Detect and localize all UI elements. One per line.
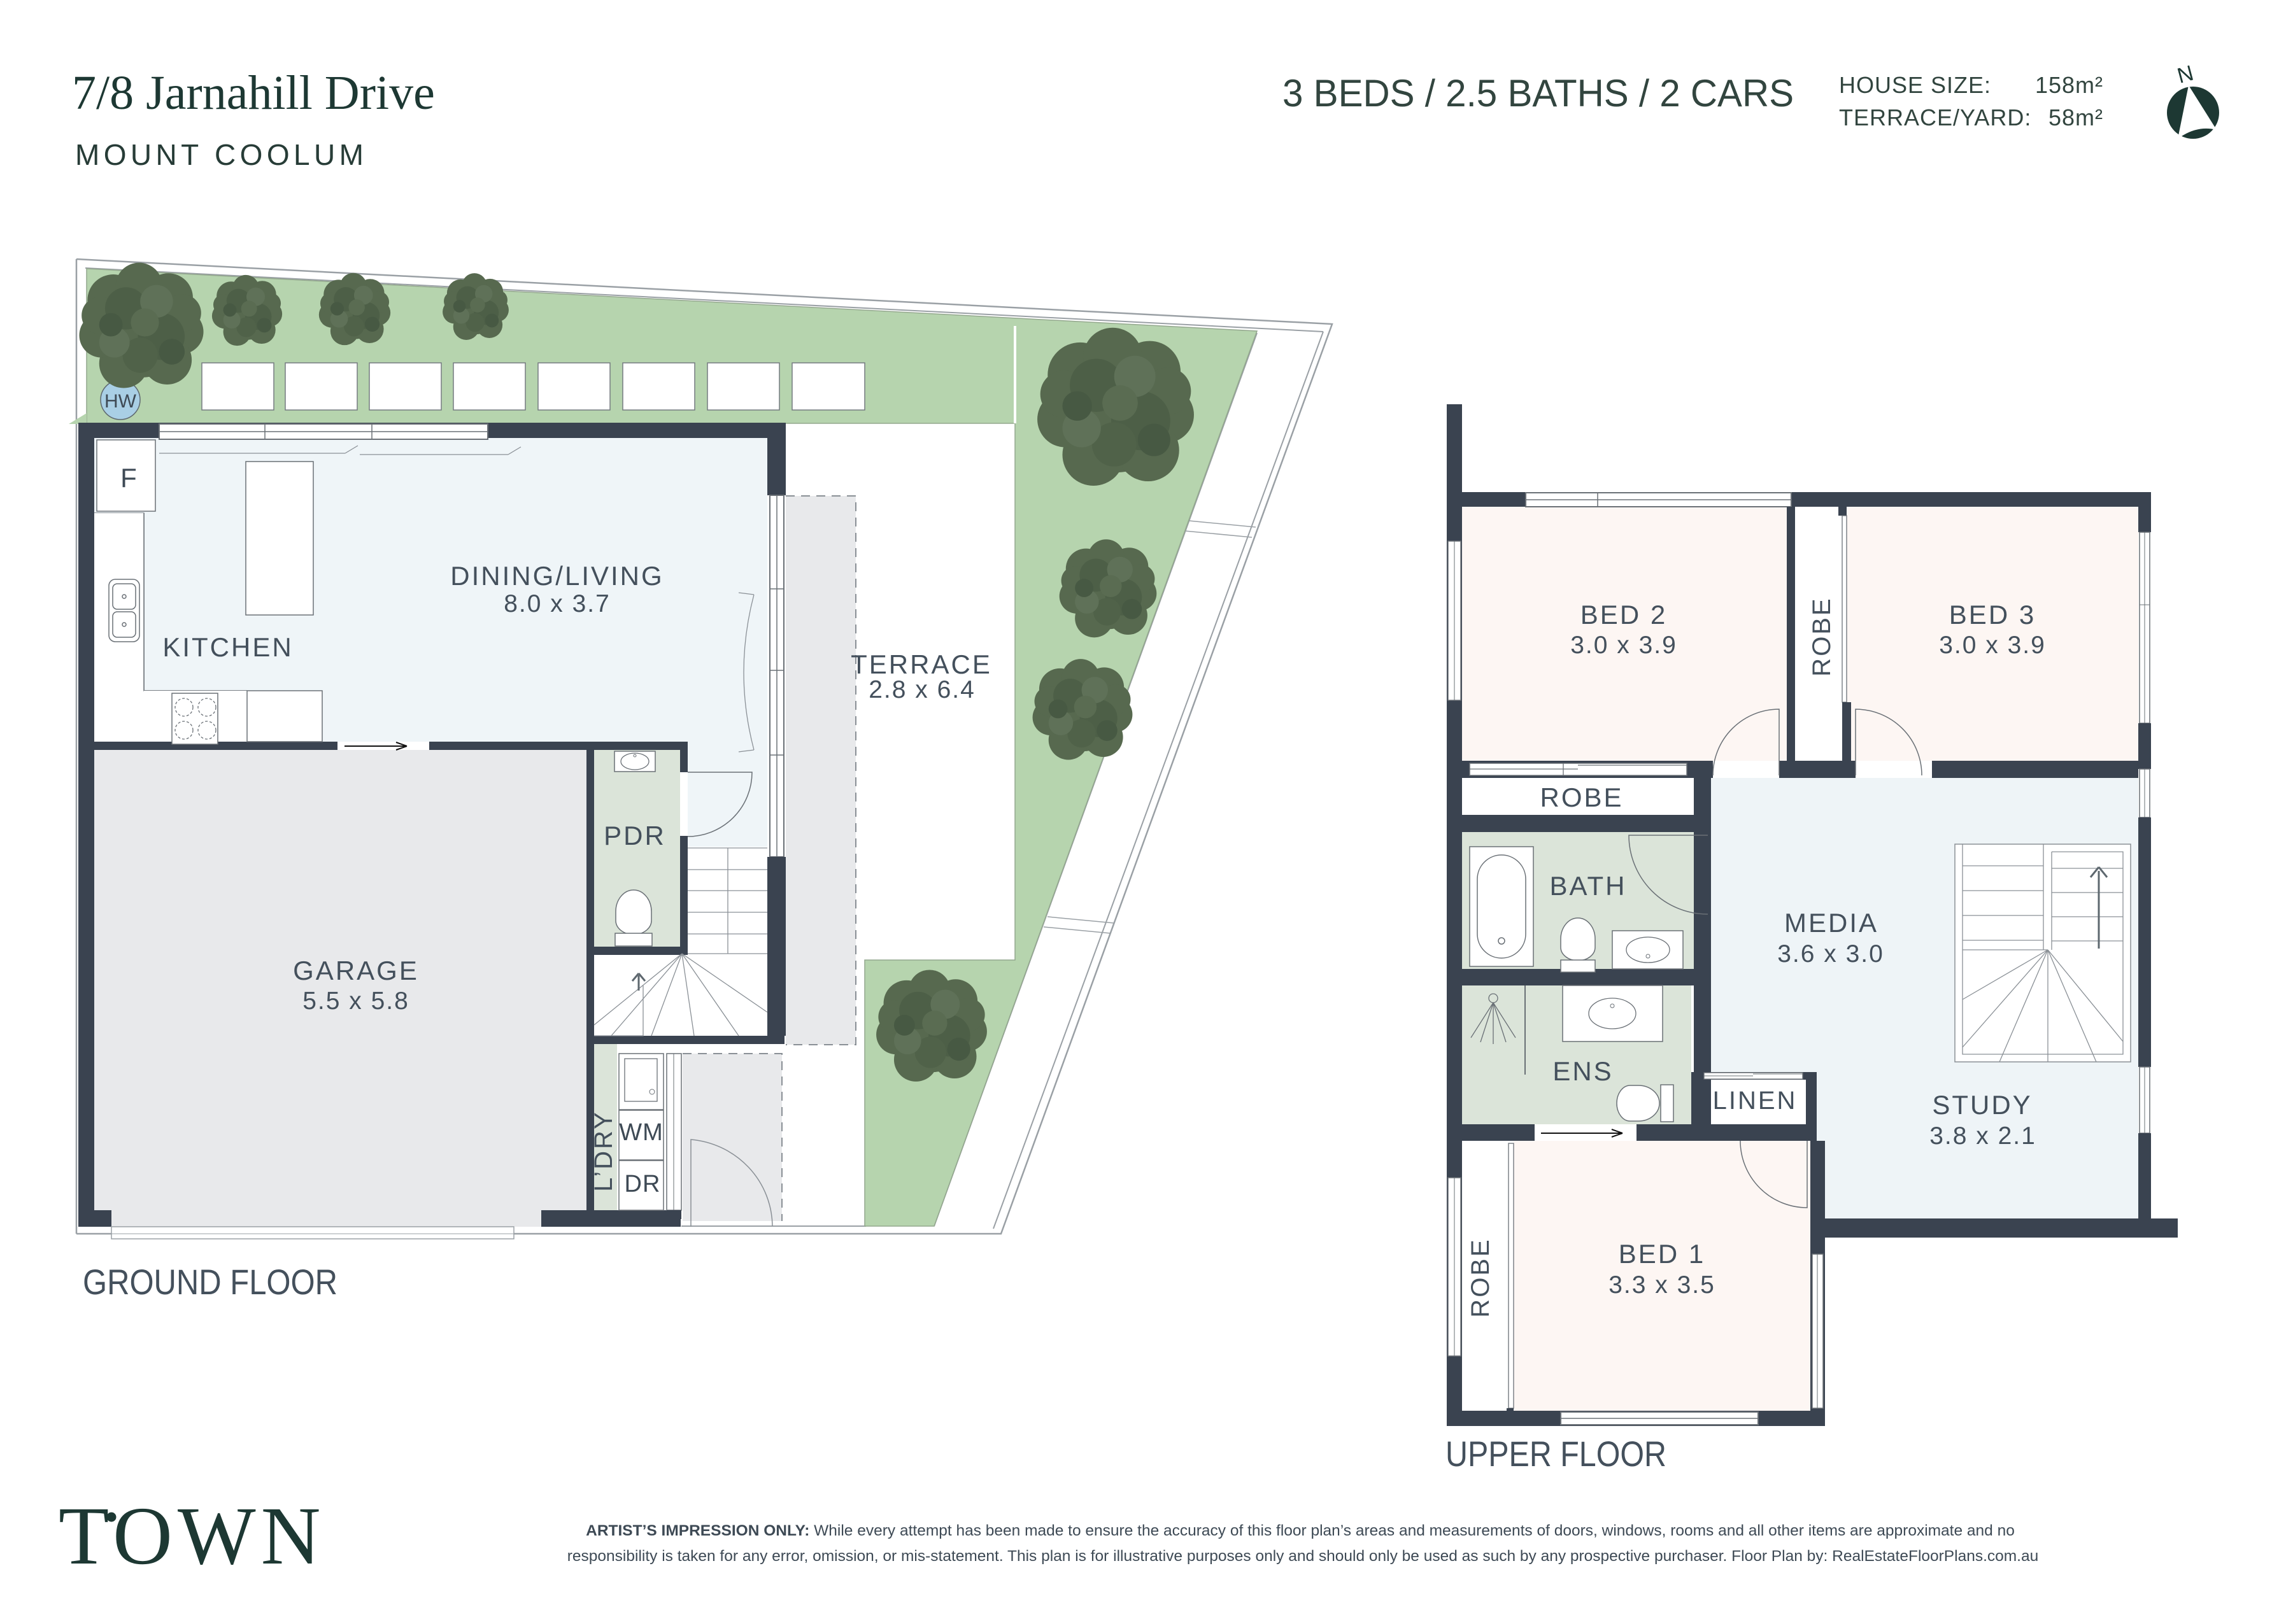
svg-text:responsibility is taken for an: responsibility is taken for any error, o… <box>567 1548 2038 1565</box>
svg-text:5.5 x 5.8: 5.5 x 5.8 <box>302 987 409 1015</box>
svg-text:ROBE: ROBE <box>1466 1238 1494 1317</box>
svg-text:ENS: ENS <box>1552 1056 1613 1086</box>
svg-text:BED 2: BED 2 <box>1580 600 1667 630</box>
svg-text:WM: WM <box>619 1119 664 1146</box>
svg-text:7/8 Jarnahill Drive: 7/8 Jarnahill Drive <box>72 66 435 120</box>
svg-text:3.6 x 3.0: 3.6 x 3.0 <box>1777 940 1884 968</box>
svg-text:GARAGE: GARAGE <box>293 956 419 985</box>
svg-text:DINING/LIVING: DINING/LIVING <box>450 561 664 591</box>
svg-text:DR: DR <box>625 1171 661 1197</box>
svg-text:3.3 x 3.5: 3.3 x 3.5 <box>1608 1271 1715 1299</box>
svg-text:58m²: 58m² <box>2048 104 2103 131</box>
svg-text:3.0 x 3.9: 3.0 x 3.9 <box>1570 632 1677 659</box>
svg-text:MEDIA: MEDIA <box>1784 908 1878 938</box>
svg-text:PDR: PDR <box>604 821 666 851</box>
svg-text:ARTIST’S IMPRESSION ONLY: Whil: ARTIST’S IMPRESSION ONLY: While every at… <box>586 1522 2015 1539</box>
svg-text:HOUSE SIZE:: HOUSE SIZE: <box>1839 72 1991 98</box>
svg-text:BATH: BATH <box>1550 871 1627 901</box>
svg-text:ROBE: ROBE <box>1808 597 1836 676</box>
svg-text:TOWN: TOWN <box>59 1490 326 1582</box>
svg-text:KITCHEN: KITCHEN <box>162 632 293 662</box>
svg-text:TERRACE: TERRACE <box>851 649 992 679</box>
svg-text:MOUNT COOLUM: MOUNT COOLUM <box>75 138 364 171</box>
svg-text:8.0 x 3.7: 8.0 x 3.7 <box>504 590 611 618</box>
svg-text:HW: HW <box>104 391 137 412</box>
svg-text:BED 3: BED 3 <box>1949 600 2036 630</box>
svg-text:3.8 x 2.1: 3.8 x 2.1 <box>1929 1122 2036 1150</box>
svg-text:2.8 x 6.4: 2.8 x 6.4 <box>869 676 976 703</box>
svg-text:L’DRY: L’DRY <box>590 1110 618 1192</box>
svg-text:LINEN: LINEN <box>1713 1087 1798 1115</box>
svg-text:ROBE: ROBE <box>1540 782 1623 812</box>
svg-text:UPPER FLOOR: UPPER FLOOR <box>1445 1434 1666 1474</box>
svg-text:158m²: 158m² <box>2035 72 2103 98</box>
svg-text:BED 1: BED 1 <box>1619 1239 1705 1269</box>
svg-text:3 BEDS / 2.5 BATHS / 2 CARS: 3 BEDS / 2.5 BATHS / 2 CARS <box>1282 72 1794 115</box>
svg-text:3.0 x 3.9: 3.0 x 3.9 <box>1939 632 2046 659</box>
svg-text:STUDY: STUDY <box>1932 1090 2032 1120</box>
svg-text:F: F <box>120 463 137 493</box>
svg-text:TERRACE/YARD:: TERRACE/YARD: <box>1839 104 2031 131</box>
svg-text:GROUND FLOOR: GROUND FLOOR <box>83 1262 337 1302</box>
